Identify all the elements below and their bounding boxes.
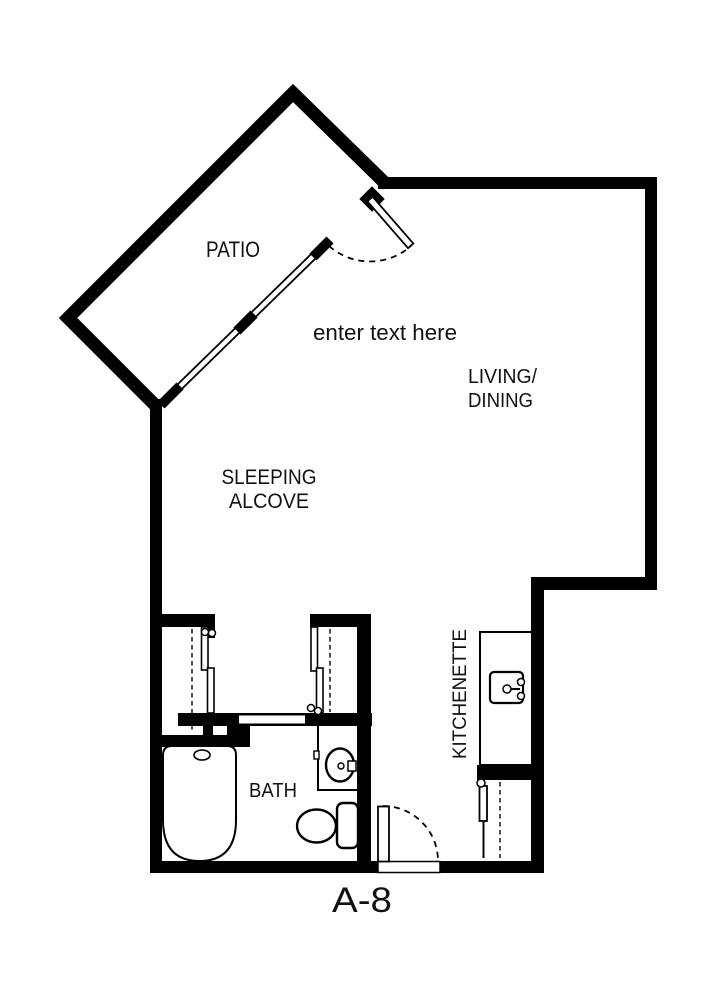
outer-wall-step	[532, 577, 657, 590]
kitchen-faucet-handle	[518, 679, 525, 686]
closet-right-door-panel	[311, 627, 318, 671]
pocket-jamb-right	[227, 726, 250, 735]
bath-sink-faucet	[348, 761, 356, 771]
closet-left-knob	[202, 629, 209, 636]
label-patio: PATIO	[206, 237, 260, 262]
closet-right-knob	[315, 708, 322, 715]
toilet-bowl	[297, 810, 336, 843]
entry-threshold	[378, 862, 440, 873]
closet-right-door-panel	[317, 668, 324, 713]
outer-wall-top	[378, 177, 657, 189]
window-mullion-mid	[237, 314, 254, 331]
floor-plan-drawing: PATIO enter text here LIVING/ DINING SLE…	[0, 0, 717, 998]
window-mullion-jamb	[313, 240, 330, 257]
kitchen-closet-door-panel	[480, 786, 488, 821]
floor-plan-canvas: PATIO enter text here LIVING/ DINING SLE…	[0, 0, 717, 998]
bath-sink-drain	[338, 763, 344, 769]
kitchen-sink-drain	[503, 685, 511, 693]
patio-door-swing-arc	[329, 246, 411, 261]
vanity-edge-tick	[314, 751, 319, 759]
outer-wall-bottom-right	[440, 861, 544, 873]
outer-wall-left	[150, 399, 162, 873]
bathtub	[163, 746, 236, 861]
patio-window-wall	[161, 238, 332, 405]
window-mullion-end	[161, 386, 180, 405]
outer-wall-bottom-left	[150, 861, 378, 873]
label-kitchenette: KITCHENETTE	[450, 629, 471, 759]
toilet-tank	[337, 803, 358, 848]
patio-door-leaf	[367, 197, 413, 248]
patio-door	[329, 197, 413, 262]
walls	[68, 93, 657, 873]
bath-pocket-door	[239, 716, 305, 724]
closet-left-door-panel	[208, 668, 215, 713]
label-living-dining-line1: LIVING/	[468, 366, 537, 388]
text-annotation-placeholder[interactable]: enter text here	[313, 320, 457, 345]
outer-wall-right-upper	[645, 177, 657, 590]
label-bath: BATH	[249, 779, 297, 802]
bathtub-drain	[194, 750, 210, 760]
label-sleeping-alcove-line1: SLEEPING	[222, 466, 317, 489]
kitchenette-fixtures	[480, 632, 532, 765]
entry-door-leaf	[378, 807, 389, 862]
label-sleeping-alcove-line2: ALCOVE	[229, 490, 309, 513]
unit-label: A-8	[332, 881, 392, 920]
label-living-dining-line2: DINING	[468, 390, 533, 412]
kitchenette-closet-wall	[477, 765, 544, 780]
closet-left-knob	[209, 630, 216, 637]
entry-door-swing-arc	[383, 806, 438, 861]
closet-wall-left-top	[150, 614, 215, 627]
entry-door	[378, 806, 440, 873]
kitchen-closet-knob	[477, 779, 485, 787]
kitchen-faucet-handle	[518, 693, 525, 700]
closet-right-knob	[308, 705, 315, 712]
